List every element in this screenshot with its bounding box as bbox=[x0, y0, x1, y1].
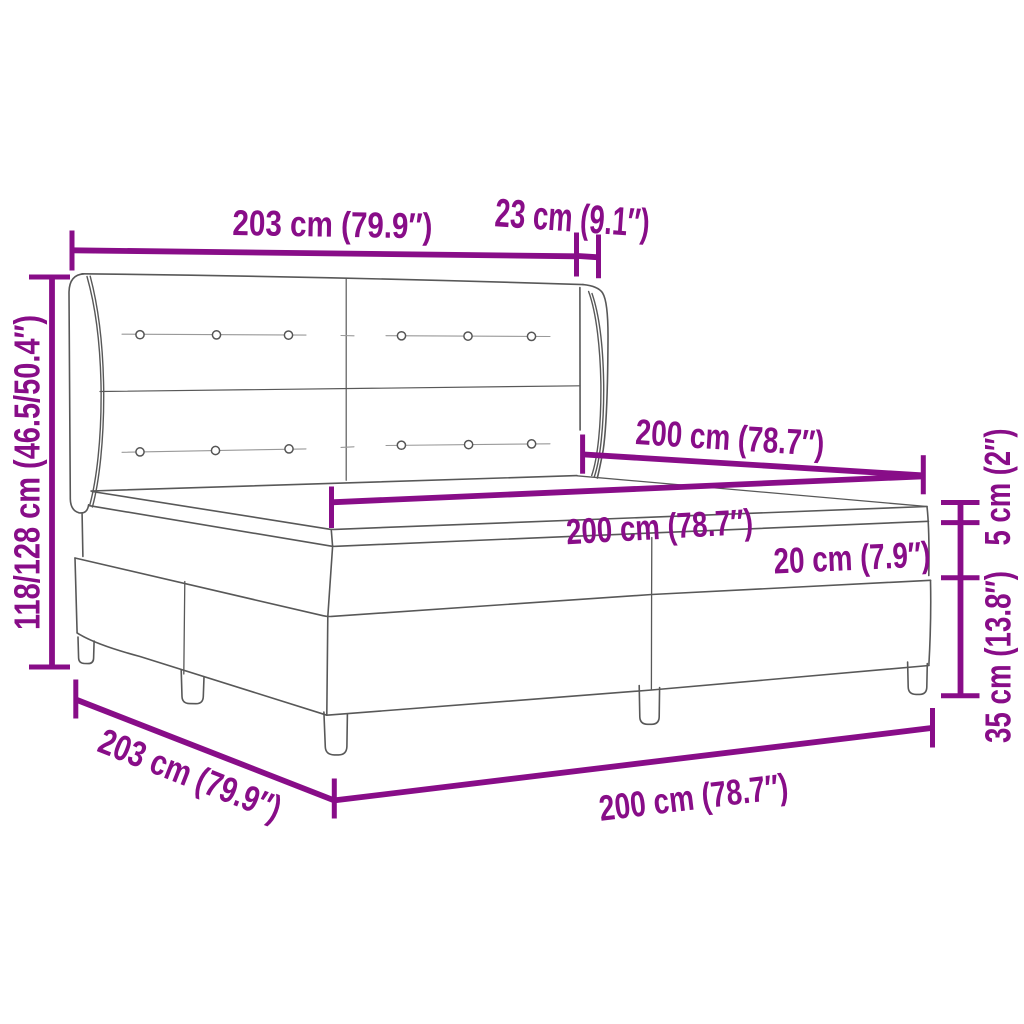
svg-text:203 cm (79.9″): 203 cm (79.9″) bbox=[232, 202, 433, 246]
svg-text:20 cm (7.9″): 20 cm (7.9″) bbox=[773, 533, 932, 581]
svg-text:118/128 cm (46.5/50.4″): 118/128 cm (46.5/50.4″) bbox=[7, 315, 48, 630]
svg-text:5 cm (2″): 5 cm (2″) bbox=[977, 429, 1018, 546]
svg-text:35 cm (13.8″): 35 cm (13.8″) bbox=[978, 571, 1019, 743]
